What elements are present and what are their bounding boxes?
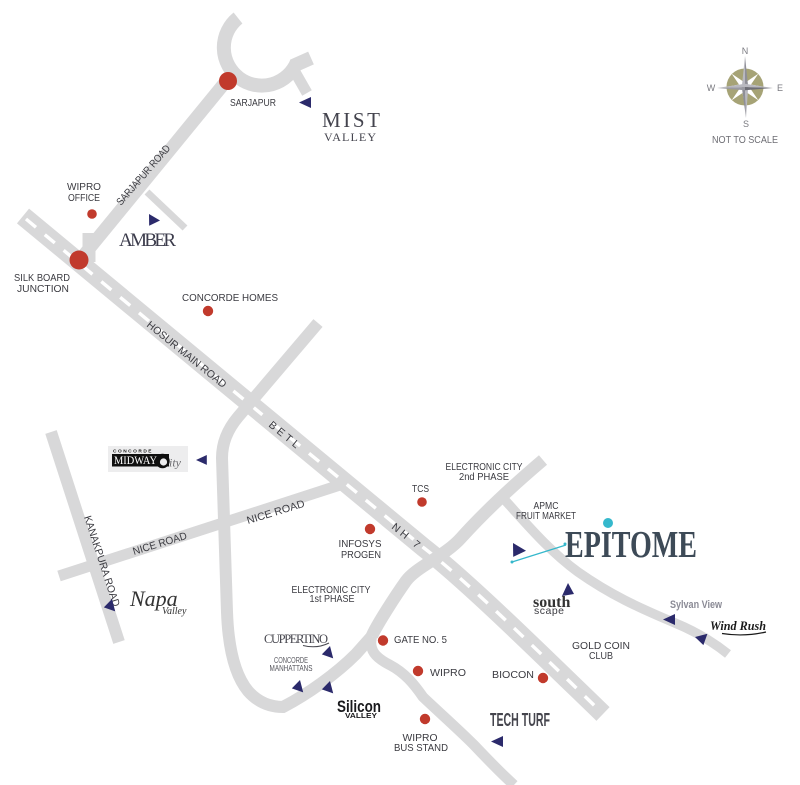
svg-text:SARJAPUR: SARJAPUR — [230, 97, 276, 109]
svg-text:TCS: TCS — [412, 483, 429, 495]
svg-text:JUNCTION: JUNCTION — [17, 283, 69, 295]
svg-text:south: south — [533, 594, 570, 611]
svg-text:PROGEN: PROGEN — [341, 549, 381, 561]
svg-text:1st PHASE: 1st PHASE — [310, 593, 355, 605]
svg-text:TECH TURF: TECH TURF — [490, 710, 550, 730]
svg-text:Sylvan View: Sylvan View — [670, 599, 722, 611]
svg-text:ity: ity — [169, 456, 182, 470]
svg-text:N: N — [742, 46, 749, 56]
svg-text:NOT TO SCALE: NOT TO SCALE — [712, 134, 778, 146]
svg-text:BUS STAND: BUS STAND — [394, 742, 448, 754]
svg-text:MANHATTANS: MANHATTANS — [270, 663, 313, 673]
svg-text:Wind Rush: Wind Rush — [710, 618, 766, 633]
svg-text:BIOCON: BIOCON — [492, 669, 534, 681]
svg-text:FRUIT MARKET: FRUIT MARKET — [516, 510, 576, 522]
svg-text:GATE NO. 5: GATE NO. 5 — [394, 634, 447, 646]
svg-text:AMBER: AMBER — [119, 230, 176, 251]
svg-text:VALLEY: VALLEY — [345, 713, 377, 720]
svg-text:Valley: Valley — [162, 606, 187, 617]
svg-text:MIDWAY: MIDWAY — [114, 453, 157, 467]
svg-text:E: E — [777, 83, 783, 93]
svg-text:CONCORDE HOMES: CONCORDE HOMES — [182, 292, 278, 304]
svg-text:CLUB: CLUB — [589, 650, 613, 662]
svg-text:WIPRO: WIPRO — [430, 667, 466, 679]
svg-text:VALLEY: VALLEY — [324, 130, 376, 144]
svg-text:S: S — [743, 119, 749, 129]
svg-text:W: W — [707, 83, 716, 93]
svg-text:OFFICE: OFFICE — [68, 192, 100, 204]
svg-text:2nd PHASE: 2nd PHASE — [459, 471, 509, 483]
svg-text:CUPPERTINO: CUPPERTINO — [264, 632, 328, 646]
svg-text:EPITOME: EPITOME — [565, 524, 697, 566]
